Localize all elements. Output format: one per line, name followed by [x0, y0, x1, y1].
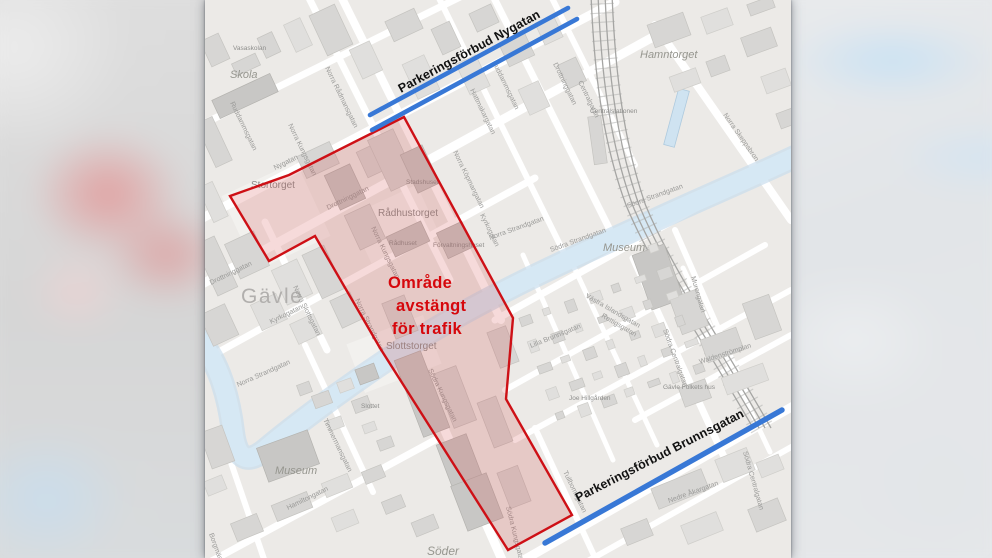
map-panel: GävleSkolaVasaskolanStortorgetRådhustorg… — [205, 0, 791, 558]
blurred-map-reflection-left — [0, 0, 205, 558]
news-map-graphic: GävleSkolaVasaskolanStortorgetRådhustorg… — [0, 0, 992, 558]
road-closed-label-line3: för trafik — [392, 320, 462, 338]
place-label: Hamntorget — [640, 49, 698, 61]
blurred-backdrop-right — [791, 0, 992, 558]
gavle-street-map: GävleSkolaVasaskolanStortorgetRådhustorg… — [205, 0, 791, 558]
place-label: Slottet — [361, 403, 380, 410]
place-label: Museum — [603, 242, 645, 254]
place-label: Vasaskolan — [233, 45, 267, 52]
blurred-map-reflection-right — [791, 0, 992, 558]
place-label: Museum — [275, 465, 317, 477]
road-closed-label-line1: Område — [388, 274, 452, 292]
place-label: Joe Hillgården — [569, 394, 611, 402]
blurred-backdrop-left — [0, 0, 205, 558]
place-label: Gävle Folkets hus — [663, 384, 716, 391]
place-label: Skola — [230, 69, 258, 81]
road-closed-label-line2: avstängt — [396, 297, 466, 315]
place-label: Söder — [427, 544, 460, 558]
